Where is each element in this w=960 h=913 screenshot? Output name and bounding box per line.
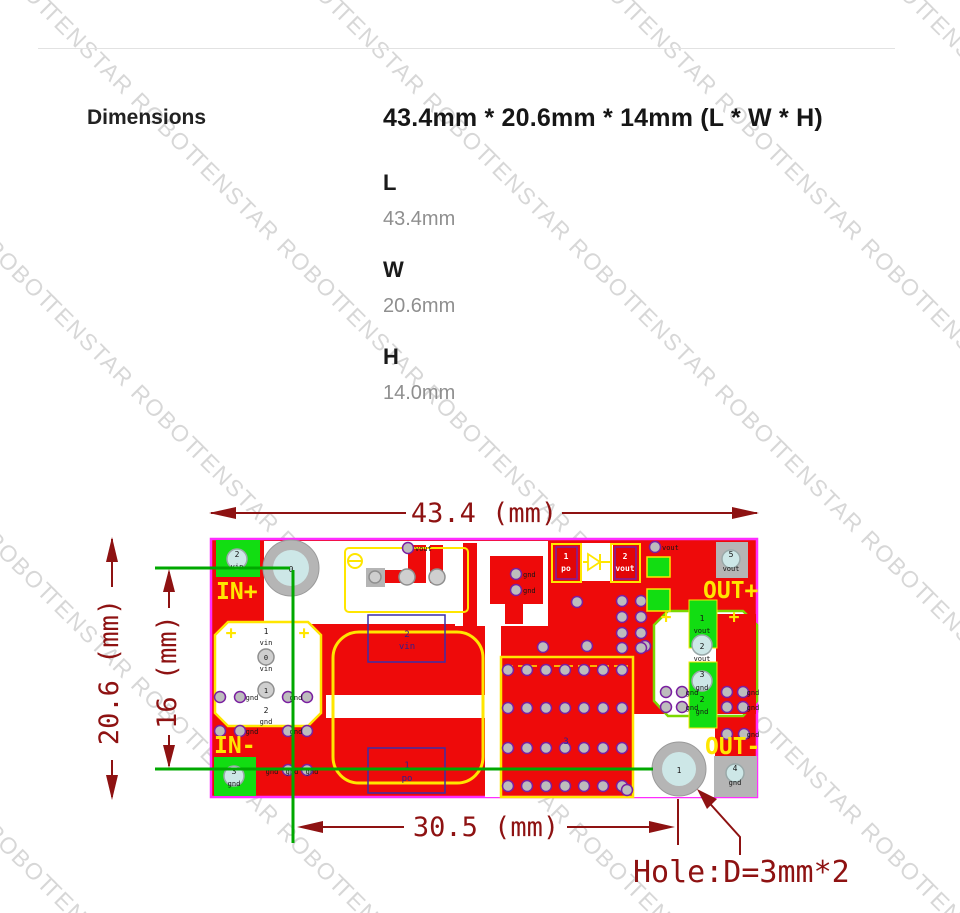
pad-number: 2 xyxy=(700,695,705,704)
terminal-vout-corner: 5 vout xyxy=(716,542,748,578)
net-label: gnd xyxy=(686,704,699,712)
ic-ref: 3 xyxy=(563,737,568,747)
dim-pitch-text: 16 (mm) xyxy=(152,615,183,729)
pad-net: vout xyxy=(723,565,740,573)
terminal-in-plus: 2 vin xyxy=(216,540,260,577)
pad-net: gnd xyxy=(228,780,241,788)
pad-net: gnd xyxy=(729,779,742,787)
plus-mark: + xyxy=(661,607,672,628)
comp-ref: vin xyxy=(399,642,415,652)
pad-number: 0 xyxy=(264,654,268,662)
net-label: gnd xyxy=(747,689,760,697)
hole-note-text: Hole:D=3mm*2 xyxy=(633,855,850,890)
plus-mark: + xyxy=(729,607,740,628)
net-label: gnd xyxy=(686,689,699,697)
plus-mark: + xyxy=(299,623,310,644)
net-label: vout xyxy=(415,545,432,553)
silk-label-out-plus: OUT+ xyxy=(703,578,759,604)
pad-number: 2 xyxy=(264,706,269,715)
pcb-dimension-drawing: 2 vin 3 gnd 5 vout 4 xyxy=(0,0,960,913)
pad-number: 4 xyxy=(733,764,738,773)
dim-hole-span-text: 30.5 (mm) xyxy=(413,812,559,843)
comp-ref: po xyxy=(402,774,413,784)
pad-number: 1 xyxy=(264,627,269,636)
net-label: gnd xyxy=(523,571,536,579)
comp-ref: 1 xyxy=(564,552,569,561)
net-label: vout xyxy=(662,544,679,552)
plus-mark: + xyxy=(226,623,237,644)
silk-label-out-minus: OUT- xyxy=(705,734,760,760)
comp-ref: 2 xyxy=(623,552,628,561)
terminal-in-minus: 3 gnd xyxy=(214,757,256,796)
pad-number: 2 xyxy=(700,642,705,651)
pad-net: vout xyxy=(694,655,711,663)
comp-ref: vout xyxy=(615,564,634,573)
dim-width-text: 20.6 (mm) xyxy=(94,599,125,745)
pad-number: 3 xyxy=(700,670,705,679)
net-label: gnd xyxy=(246,694,259,702)
hole-number: 1 xyxy=(677,766,682,775)
silk-label-in-plus: IN+ xyxy=(216,579,258,605)
mounting-hole-1: 1 xyxy=(652,742,706,796)
pad-number: 2 xyxy=(235,550,240,559)
pad-net: gnd xyxy=(260,718,273,726)
product-spec-page: TENSTAR ROBOTTENSTAR ROBOTTENSTAR ROBOTT… xyxy=(0,0,960,913)
pad-net: vout xyxy=(694,627,711,635)
terminal-gnd-corner: 4 gnd xyxy=(714,756,757,797)
net-label: gnd xyxy=(747,704,760,712)
pad-number: 1 xyxy=(264,687,268,695)
comp-ref: 2 xyxy=(404,630,409,640)
silk-label-in-minus: IN- xyxy=(214,733,256,759)
pad-number: 1 xyxy=(700,614,705,623)
pad-net: vin xyxy=(260,639,273,647)
dim-length-text: 43.4 (mm) xyxy=(411,498,557,529)
pad-number: 5 xyxy=(729,550,734,559)
comp-ref: po xyxy=(561,564,571,573)
pad-net: vin xyxy=(260,665,273,673)
net-label: gnd xyxy=(523,587,536,595)
